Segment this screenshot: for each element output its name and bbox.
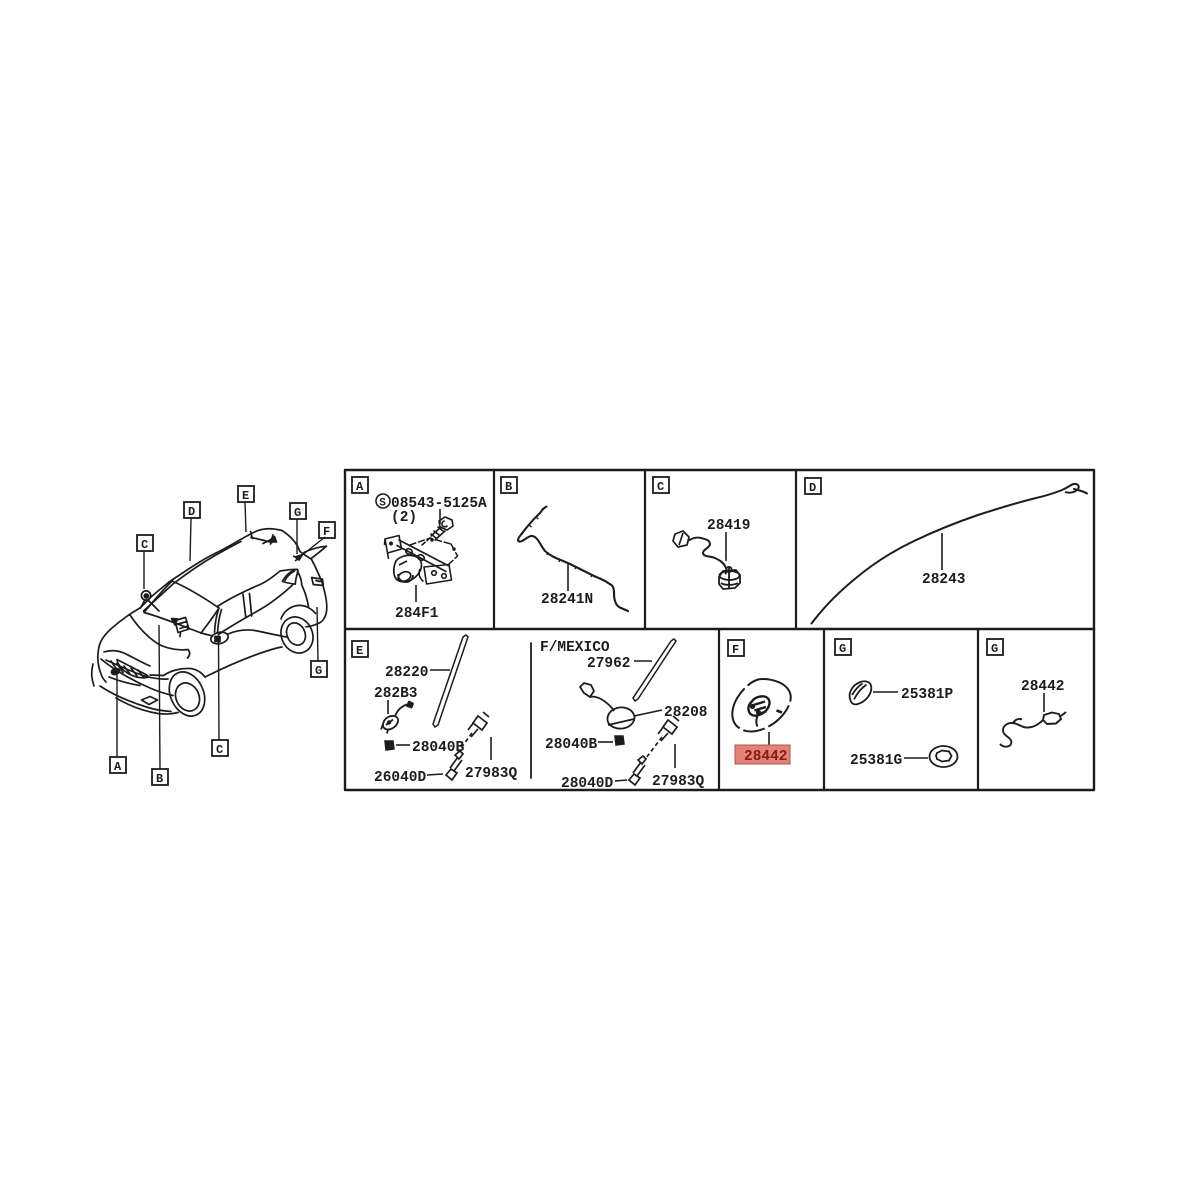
svg-text:E: E bbox=[356, 644, 363, 658]
svg-text:25381P: 25381P bbox=[901, 687, 954, 703]
svg-text:284F1: 284F1 bbox=[395, 606, 439, 622]
svg-text:C: C bbox=[141, 538, 148, 552]
svg-text:27983Q: 27983Q bbox=[652, 774, 705, 790]
svg-text:28243: 28243 bbox=[922, 572, 966, 588]
svg-text:28241N: 28241N bbox=[541, 592, 593, 608]
svg-text:A: A bbox=[356, 480, 364, 494]
svg-text:S: S bbox=[379, 498, 386, 510]
svg-text:D: D bbox=[809, 481, 816, 495]
svg-text:C: C bbox=[657, 480, 664, 494]
svg-text:G: G bbox=[991, 642, 998, 656]
svg-text:F: F bbox=[732, 643, 739, 657]
svg-text:25381G: 25381G bbox=[850, 753, 902, 769]
svg-text:F/MEXICO: F/MEXICO bbox=[540, 640, 610, 656]
svg-text:28419: 28419 bbox=[707, 518, 751, 534]
svg-text:28040D: 28040D bbox=[561, 776, 614, 792]
svg-text:28220: 28220 bbox=[385, 665, 429, 681]
svg-text:26040D: 26040D bbox=[374, 770, 427, 786]
svg-text:A: A bbox=[114, 760, 122, 774]
svg-text:G: G bbox=[315, 664, 322, 678]
svg-text:27983Q: 27983Q bbox=[465, 766, 518, 782]
svg-text:G: G bbox=[294, 506, 301, 520]
svg-text:G: G bbox=[839, 642, 846, 656]
svg-text:28442: 28442 bbox=[1021, 679, 1065, 695]
svg-text:B: B bbox=[505, 480, 512, 494]
svg-text:27962: 27962 bbox=[587, 656, 631, 672]
svg-text:28040B: 28040B bbox=[545, 737, 598, 753]
svg-text:C: C bbox=[216, 743, 223, 757]
svg-text:D: D bbox=[188, 505, 195, 519]
svg-text:28442: 28442 bbox=[744, 749, 788, 765]
svg-text:(2): (2) bbox=[391, 510, 417, 526]
svg-text:B: B bbox=[156, 772, 163, 786]
svg-text:28208: 28208 bbox=[664, 705, 708, 721]
svg-text:E: E bbox=[242, 489, 249, 503]
svg-text:282B3: 282B3 bbox=[374, 686, 418, 702]
